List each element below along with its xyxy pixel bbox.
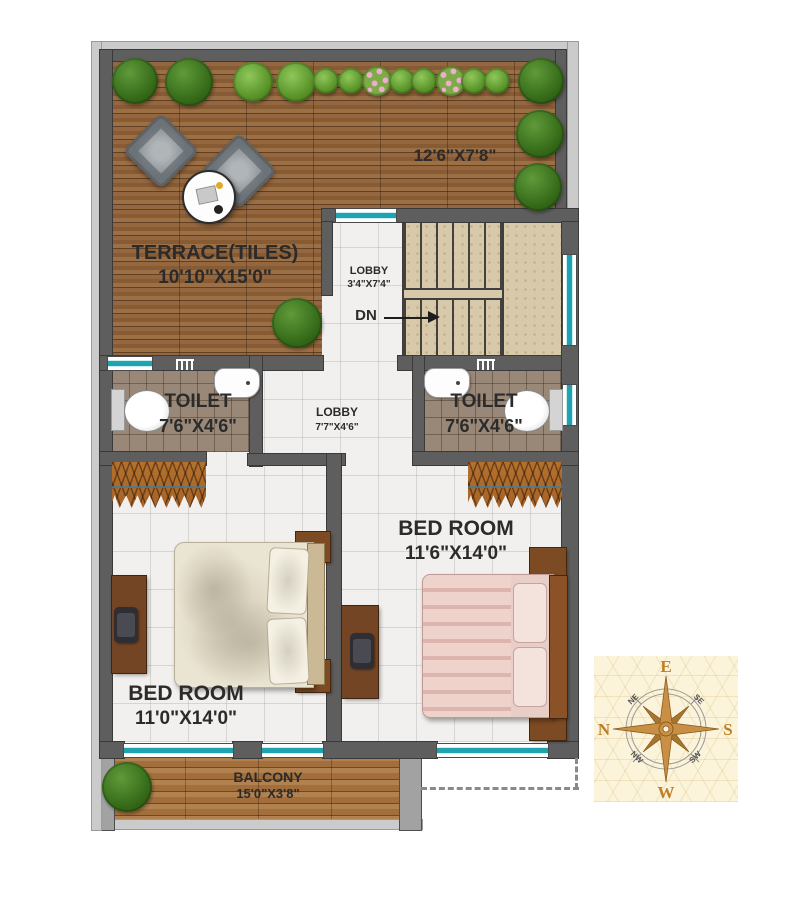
plant-icon (516, 110, 564, 158)
compass-south: S (723, 720, 732, 739)
toilet-left-dimensions: 7'6"X4'6" (159, 415, 237, 438)
window-bedroom-right (437, 744, 548, 757)
bedroom-left-dimensions: 11'0"X14'0" (128, 707, 244, 732)
bed-left-headboard (308, 544, 324, 684)
plant-icon (484, 68, 510, 94)
toilet-left-label: TOILET 7'6"X4'6" (159, 390, 237, 438)
plant-icon (272, 298, 322, 348)
plant-icon (518, 58, 564, 104)
bedroom-left-name: BED ROOM (128, 680, 244, 707)
middle-lobby-dimensions: 7'7"X4'6" (315, 421, 358, 434)
wall-bottom-a (100, 742, 124, 758)
middle-lobby-name: LOBBY (315, 405, 358, 421)
bedroom-right-label: BED ROOM 11'6"X14'0" (398, 515, 514, 567)
compass-southeast: SE (692, 692, 706, 706)
projection-dash-vertical (575, 758, 578, 789)
bedroom-left-label: BED ROOM 11'0"X14'0" (128, 680, 244, 732)
compass-panel: E S W N NE SE SW NW (594, 656, 738, 802)
nightstand (530, 548, 566, 576)
projection-dash-horizontal (421, 787, 579, 790)
desk-chair (350, 633, 374, 669)
balcony-dimensions: 15'0"X3'8" (233, 786, 302, 803)
plant-icon (233, 62, 273, 102)
wall-left (100, 50, 112, 758)
toilet-left-name: TOILET (159, 390, 237, 415)
table-item (214, 205, 223, 214)
shower-icon (477, 359, 495, 370)
stair-rail (404, 288, 502, 300)
plant-icon (102, 762, 152, 812)
wall-bottom-d (548, 742, 578, 758)
upper-lobby-dimensions: 3'4"X7'4" (347, 278, 390, 291)
plant-icon (338, 68, 364, 94)
pillow (513, 583, 547, 643)
wall-upper-lobby-left (322, 222, 332, 295)
plant-icon (276, 62, 316, 102)
plant-icon (411, 68, 437, 94)
staircase (402, 222, 564, 356)
table-item (216, 182, 223, 189)
desk-chair (114, 607, 138, 643)
toilet-tank (112, 390, 124, 430)
plant-icon (112, 58, 158, 104)
wall-bottom-c (323, 742, 437, 758)
window-bedroom-left-1 (124, 744, 233, 757)
table-tray (197, 186, 218, 203)
compass-southwest: SW (687, 749, 703, 765)
nightstand (530, 716, 566, 740)
stairs-dn-label: DN (355, 306, 377, 326)
dn-arrow-line (384, 317, 430, 319)
bedroom-right-dimensions: 11'6"X14'0" (398, 542, 514, 567)
terrace-upper-dimensions: 12'6"X7'8" (414, 145, 497, 167)
pillow (513, 647, 547, 707)
compass-rose-icon: E S W N NE SE SW NW (594, 656, 738, 802)
floorplan-canvas: 12'6"X7'8" TERRACE(TILES) 10'10"X15'0" L… (0, 0, 800, 900)
compass-north: N (598, 720, 611, 739)
wall-toilet-right-side (413, 356, 424, 457)
wall-terrace-top (100, 50, 560, 61)
upper-lobby-name: LOBBY (347, 264, 390, 278)
compass-northwest: NW (629, 749, 645, 765)
terrace-label: TERRACE(TILES) 10'10"X15'0" (132, 240, 299, 291)
window-upper-lobby (336, 209, 396, 222)
bed-right-blanket (423, 575, 511, 717)
balcony-label: BALCONY 15'0"X3'8" (233, 768, 302, 803)
window-toilet-left (108, 357, 152, 370)
middle-lobby-label: LOBBY 7'7"X4'6" (315, 405, 358, 434)
wall-bottom-b (233, 742, 262, 758)
parapet-right (568, 42, 578, 222)
plant-icon (514, 163, 562, 211)
window-bedroom-left-2 (262, 744, 323, 757)
balcony-name: BALCONY (233, 768, 302, 786)
balcony-slab-edge (92, 820, 422, 829)
shower-icon (176, 359, 194, 370)
wall-bedroom-divider (327, 454, 341, 758)
window-toilet-right (563, 385, 576, 425)
compass-west: W (658, 783, 675, 802)
bed-right-headboard (550, 576, 567, 718)
toilet-right-name: TOILET (445, 390, 523, 415)
bedroom-right-name: BED ROOM (398, 515, 514, 542)
dn-arrow-head (428, 311, 440, 323)
plant-icon (313, 68, 339, 94)
pillow (266, 547, 309, 615)
pillow (266, 617, 309, 685)
compass-northeast: NE (626, 692, 641, 707)
terrace-name: TERRACE(TILES) (132, 240, 299, 266)
upper-lobby-label: LOBBY 3'4"X7'4" (347, 264, 390, 291)
toilet-right-dimensions: 7'6"X4'6" (445, 415, 523, 438)
compass-east: E (660, 657, 671, 676)
window-stair-landing (563, 255, 576, 345)
bed-right (422, 574, 554, 718)
balcony-pillar-right (400, 752, 421, 830)
plant-icon (165, 58, 213, 106)
flower-plant-icon (362, 66, 392, 96)
toilet-tank (550, 390, 562, 430)
terrace-dimensions: 10'10"X15'0" (132, 266, 299, 291)
terrace-round-table (182, 170, 236, 224)
toilet-right-label: TOILET 7'6"X4'6" (445, 390, 523, 438)
